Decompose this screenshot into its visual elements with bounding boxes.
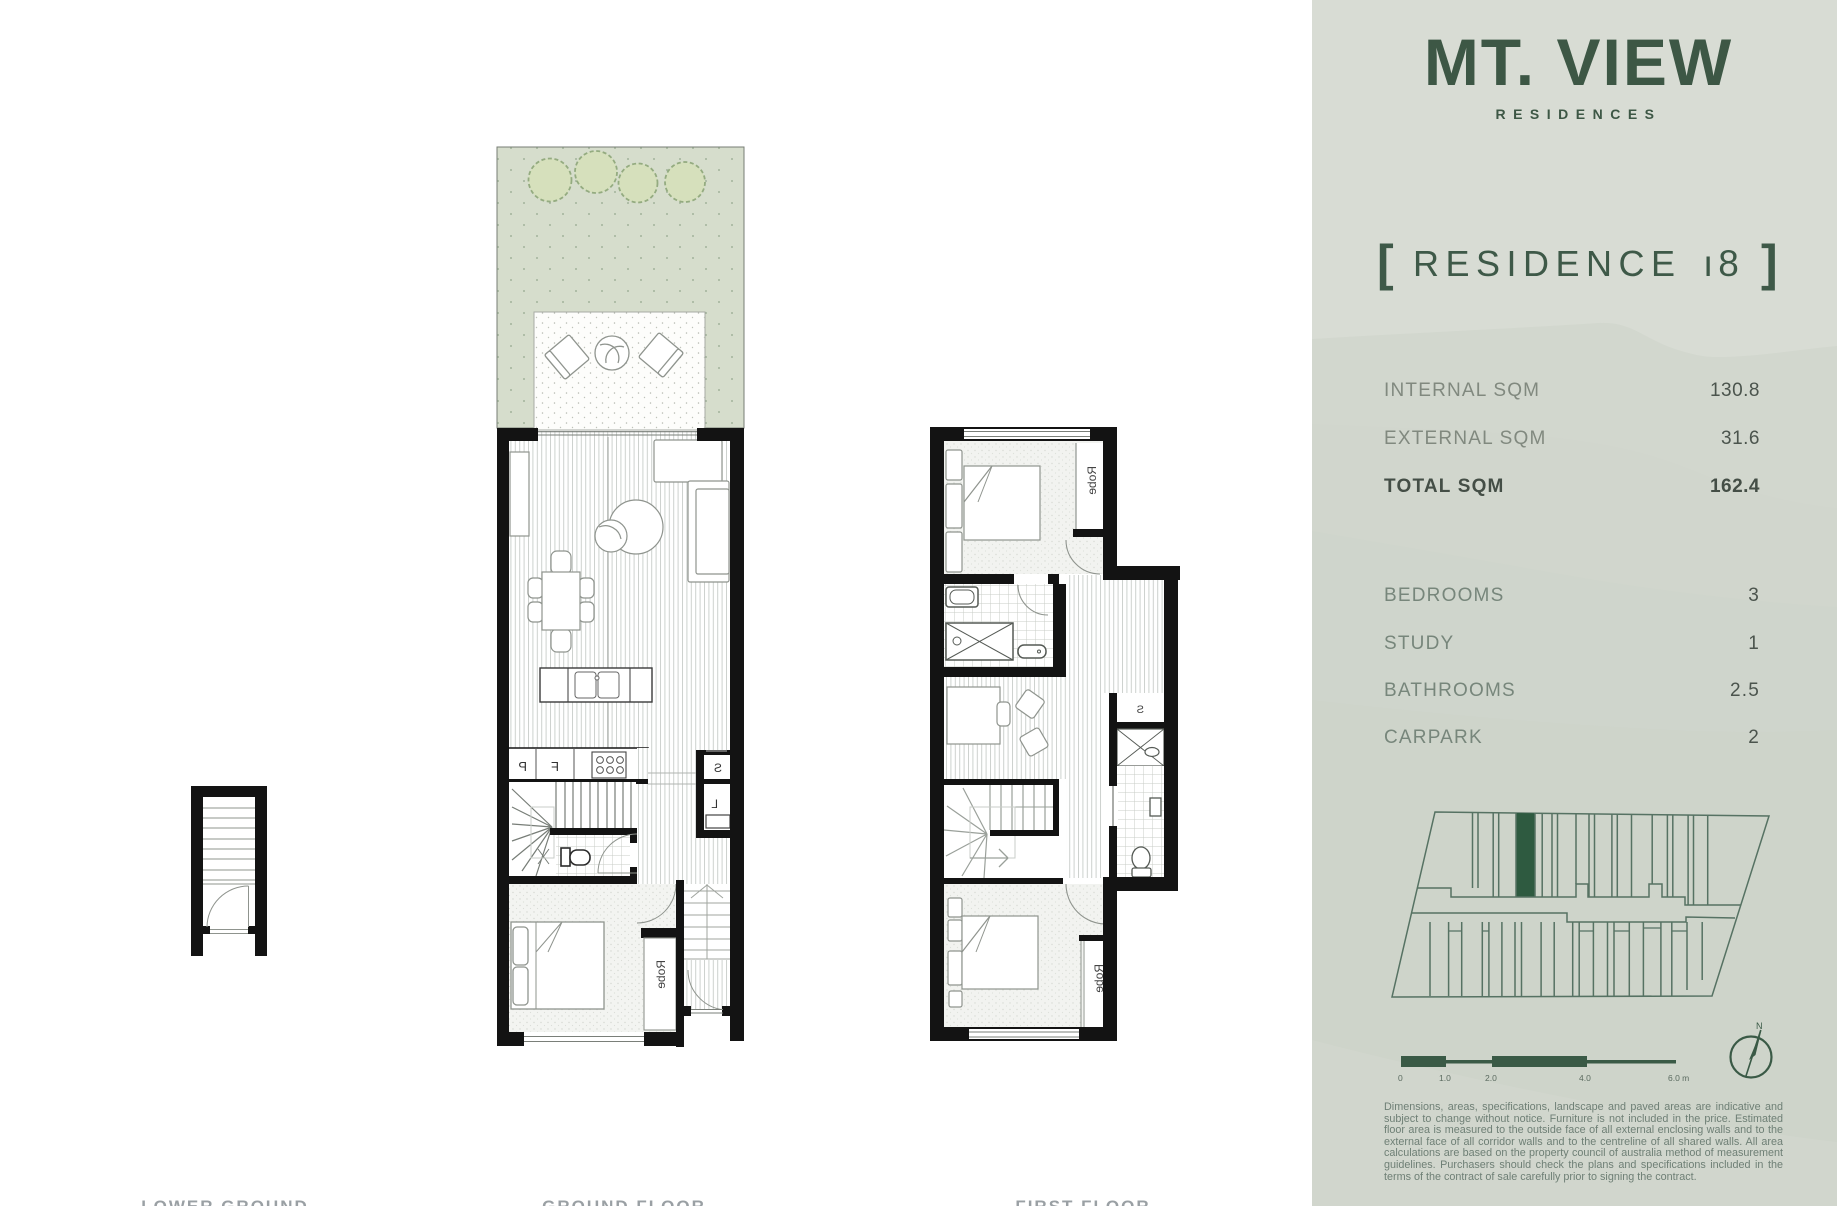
svg-text:0: 0 xyxy=(1398,1073,1403,1083)
svg-text:1.0: 1.0 xyxy=(1439,1073,1451,1083)
svg-text:L: L xyxy=(711,797,718,811)
svg-text:F: F xyxy=(551,759,559,774)
svg-text:N: N xyxy=(1756,1021,1763,1031)
svg-text:2.0: 2.0 xyxy=(1485,1073,1497,1083)
svg-text:S: S xyxy=(1137,704,1144,716)
svg-text:Robe: Robe xyxy=(1085,466,1099,495)
svg-text:S: S xyxy=(714,761,722,775)
svg-text:6.0 m: 6.0 m xyxy=(1668,1073,1689,1083)
svg-text:Robe: Robe xyxy=(654,960,668,989)
svg-text:P: P xyxy=(518,759,527,774)
svg-text:4.0: 4.0 xyxy=(1579,1073,1591,1083)
